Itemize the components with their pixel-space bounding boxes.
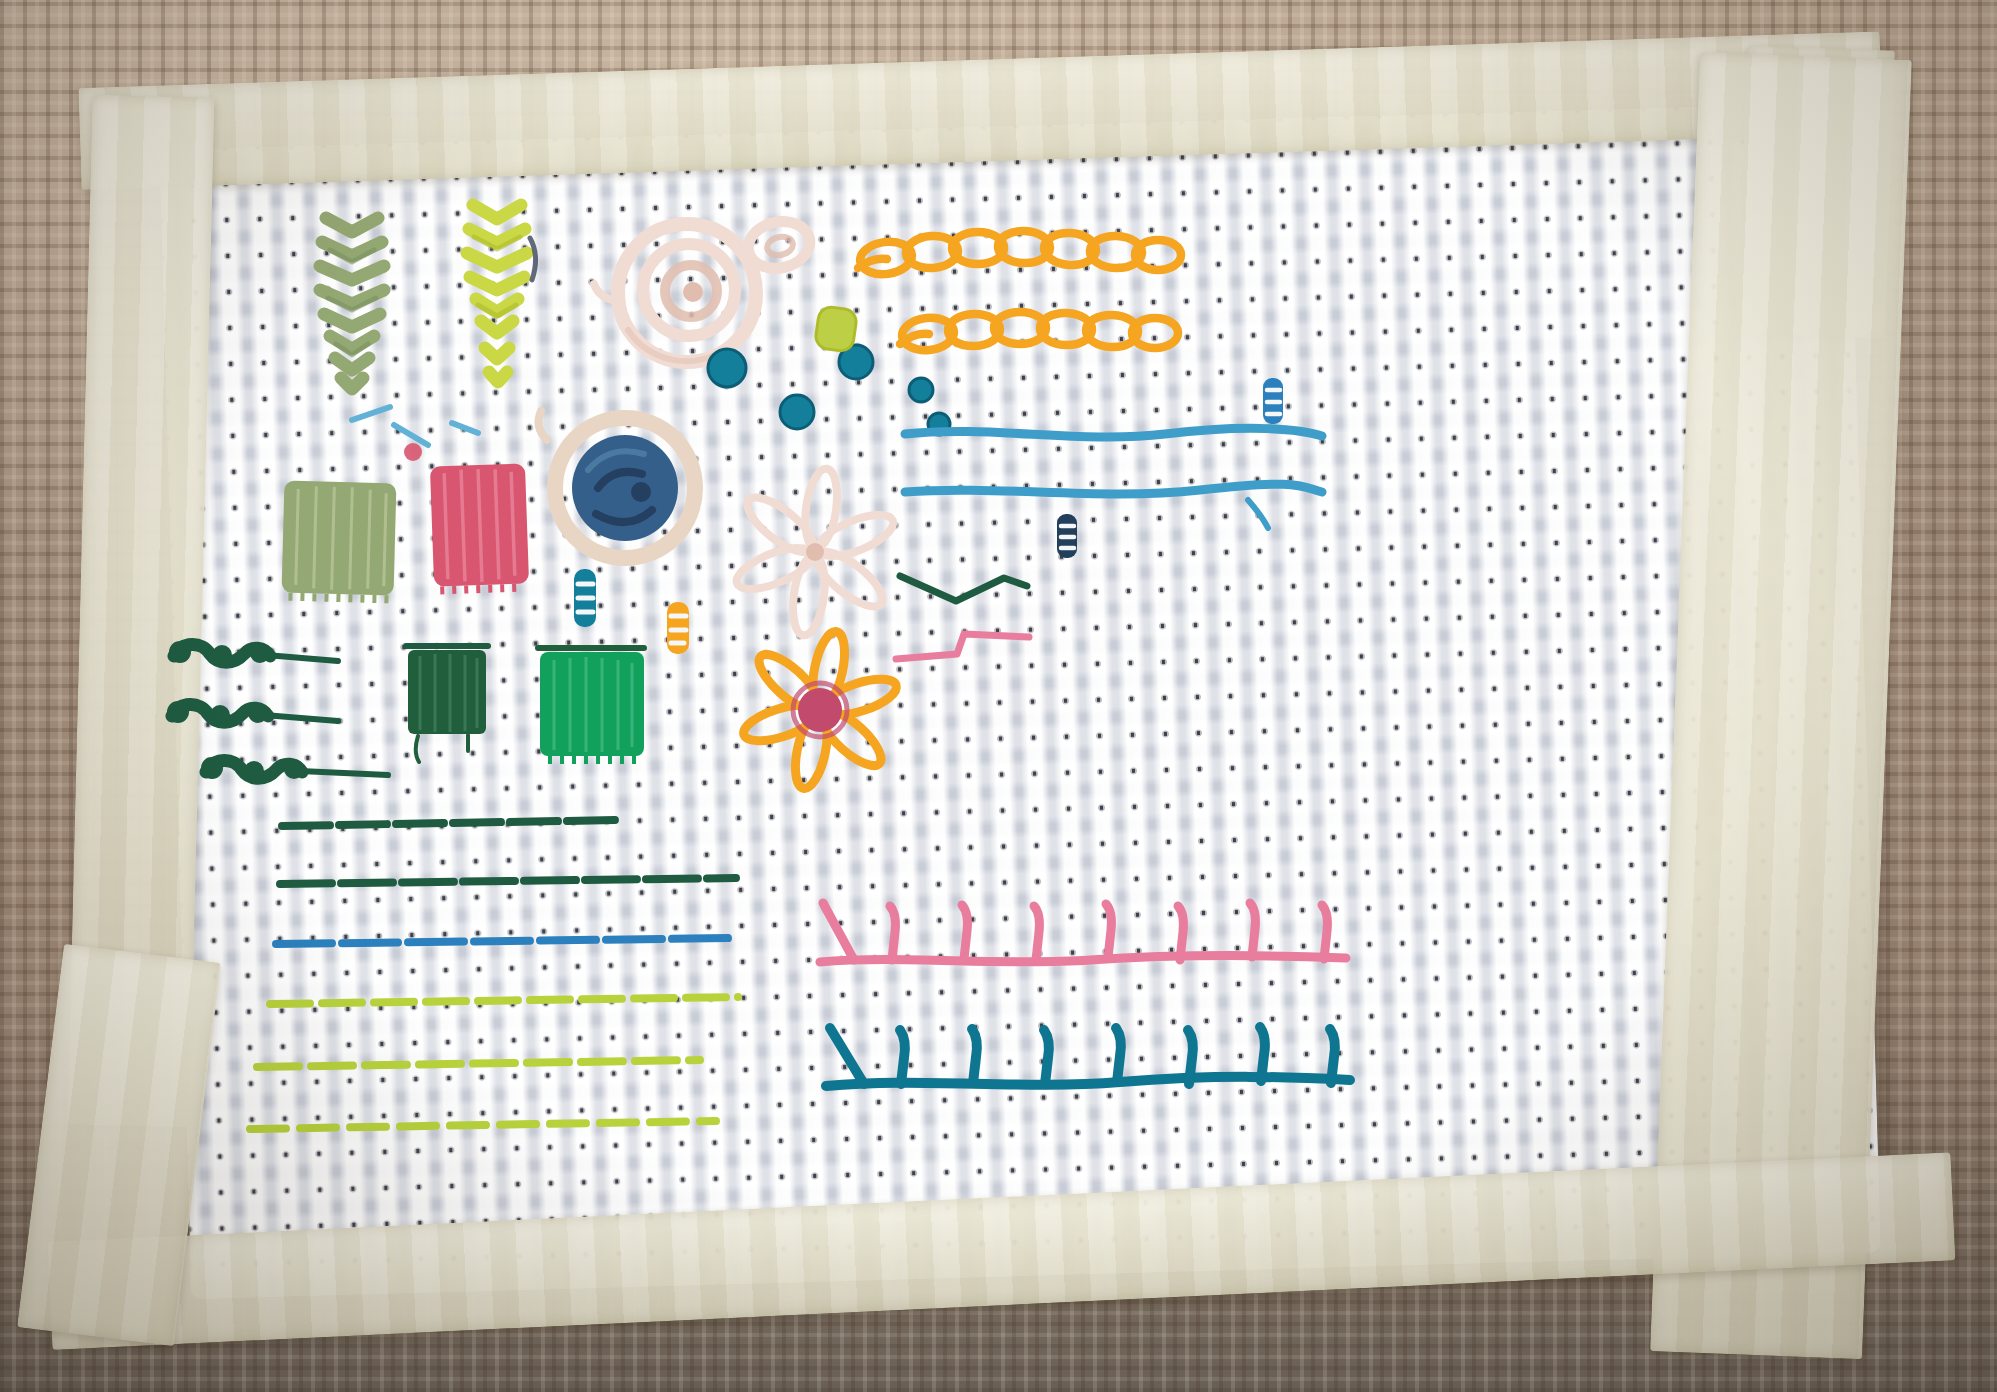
embroidery-sampler-photo: { "scene": { "type": "photograph", "subj… — [0, 0, 1997, 1392]
aida-cloth — [159, 103, 1880, 1300]
